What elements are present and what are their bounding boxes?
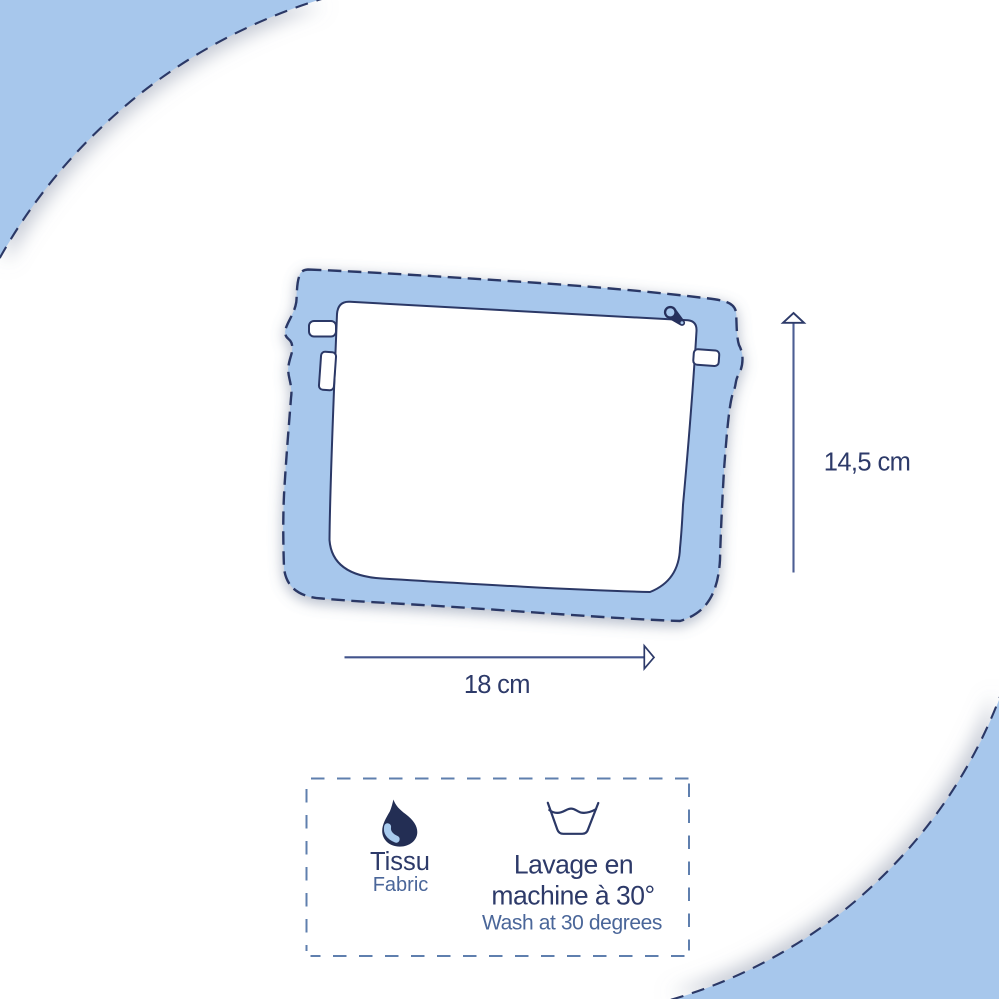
svg-text:18 cm: 18 cm [464,671,530,699]
svg-text:machine à 30°: machine à 30° [491,881,654,911]
svg-text:14,5 cm: 14,5 cm [824,449,911,477]
svg-text:Lavage en: Lavage en [514,850,633,880]
svg-text:Fabric: Fabric [373,874,429,896]
svg-text:Wash at 30 degrees: Wash at 30 degrees [482,911,662,934]
svg-text:Tissu: Tissu [370,848,430,876]
